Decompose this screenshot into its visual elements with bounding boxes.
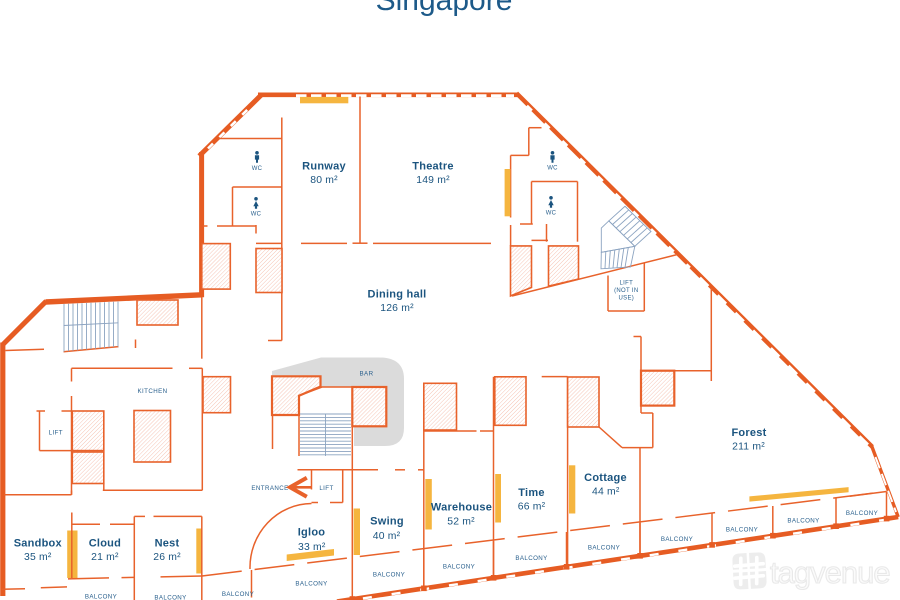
svg-text:BALCONY: BALCONY [373,572,405,579]
svg-text:Theatre: Theatre [412,161,454,173]
svg-text:Singapore: Singapore [376,0,513,17]
svg-text:LIFT: LIFT [319,485,333,492]
svg-text:BALCONY: BALCONY [295,581,327,588]
svg-text:BALCONY: BALCONY [787,518,819,525]
svg-text:BALCONY: BALCONY [154,595,186,600]
svg-text:Forest: Forest [731,427,766,439]
svg-text:Nest: Nest [155,538,180,550]
svg-text:BALCONY: BALCONY [443,564,475,571]
svg-text:tagvenue: tagvenue [770,555,890,590]
svg-text:BALCONY: BALCONY [515,555,547,562]
svg-text:BAR: BAR [360,371,374,378]
svg-text:Warehouse: Warehouse [431,502,492,514]
svg-text:ENTRANCE: ENTRANCE [251,485,288,492]
svg-text:Dining hall: Dining hall [368,289,427,301]
svg-text:BALCONY: BALCONY [588,545,620,552]
svg-text:USE): USE) [619,296,635,302]
svg-text:Cottage: Cottage [584,472,627,484]
svg-text:KITCHEN: KITCHEN [138,388,168,395]
svg-text:WC: WC [546,211,557,217]
svg-text:WC: WC [547,166,558,172]
svg-text:21 m²: 21 m² [91,552,119,563]
svg-text:WC: WC [252,166,263,172]
svg-text:WC: WC [251,212,262,218]
svg-text:Time: Time [518,487,544,499]
svg-text:BALCONY: BALCONY [726,527,758,534]
svg-text:33 m²: 33 m² [298,542,326,553]
svg-text:Sandbox: Sandbox [14,538,63,550]
svg-text:Runway: Runway [302,161,346,173]
svg-text:(NOT IN: (NOT IN [614,288,638,294]
svg-text:BALCONY: BALCONY [846,510,878,517]
svg-text:26 m²: 26 m² [153,552,181,563]
svg-text:40 m²: 40 m² [373,531,401,542]
svg-text:BALCONY: BALCONY [661,536,693,543]
svg-text:LIFT: LIFT [49,430,63,437]
svg-text:Igloo: Igloo [298,527,326,539]
svg-text:52 m²: 52 m² [447,517,475,528]
svg-text:66 m²: 66 m² [518,502,546,513]
svg-text:Swing: Swing [370,516,404,528]
svg-text:LIFT: LIFT [620,281,634,287]
svg-text:80 m²: 80 m² [310,175,338,186]
svg-text:126 m²: 126 m² [380,303,414,314]
svg-text:44 m²: 44 m² [592,487,620,498]
svg-text:211 m²: 211 m² [732,442,765,453]
svg-text:BALCONY: BALCONY [85,594,117,600]
svg-text:BALCONY: BALCONY [222,591,254,598]
svg-text:149 m²: 149 m² [416,175,450,186]
svg-text:35 m²: 35 m² [24,552,52,563]
svg-text:Cloud: Cloud [89,538,121,550]
